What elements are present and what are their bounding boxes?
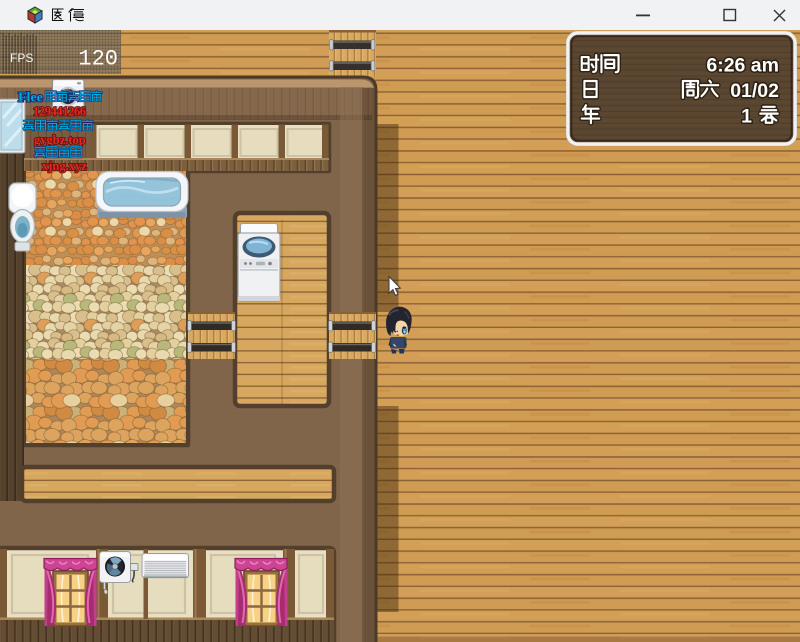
svg-text:FPS: FPS (10, 51, 33, 65)
svg-text:Flee: Flee (18, 91, 43, 106)
svg-text:1: 1 (741, 106, 752, 128)
svg-text:01/02: 01/02 (730, 80, 779, 102)
svg-text:gygbz.top: gygbz.top (34, 133, 86, 147)
svg-text:6:26 am: 6:26 am (706, 55, 779, 77)
svg-text:xjng.xyz: xjng.xyz (42, 159, 87, 173)
svg-text:129441266: 129441266 (33, 105, 86, 119)
svg-text:120: 120 (78, 47, 118, 72)
